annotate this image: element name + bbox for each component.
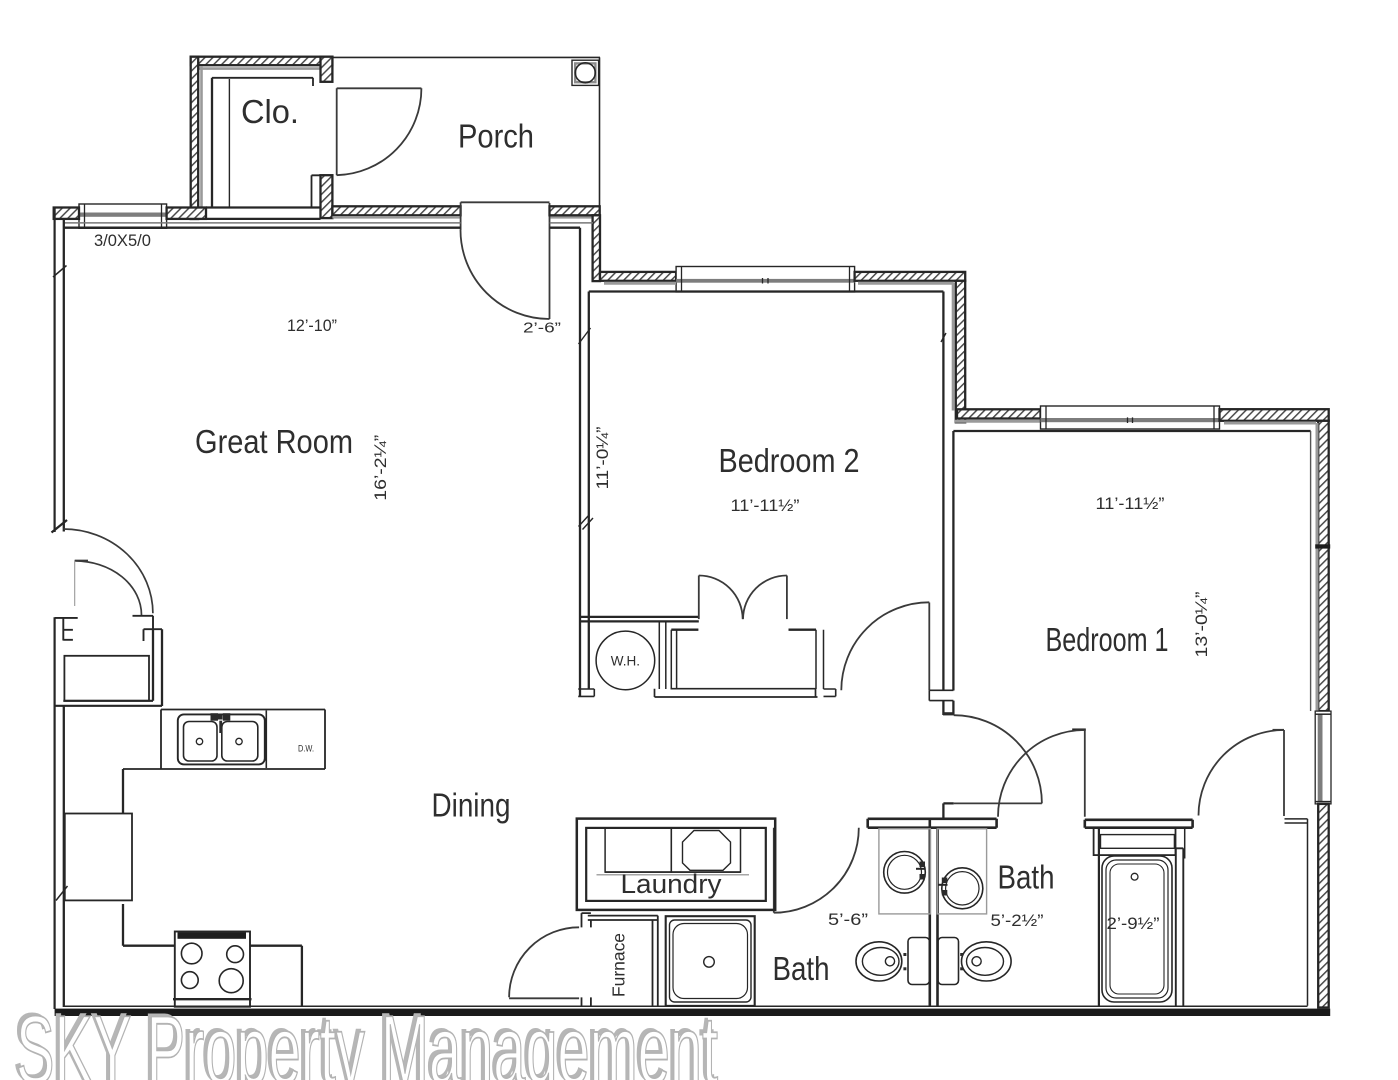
svg-text:Bath: Bath — [773, 950, 830, 987]
svg-text:11’-11½”: 11’-11½” — [1096, 495, 1165, 513]
svg-text:12’-10”: 12’-10” — [287, 317, 337, 335]
svg-text:Dining: Dining — [432, 787, 511, 824]
svg-text:Great Room: Great Room — [195, 423, 353, 460]
svg-text:D.W.: D.W. — [298, 744, 314, 754]
svg-text:SKY Property Management: SKY Property Management — [16, 996, 718, 1080]
svg-text:Bedroom 1: Bedroom 1 — [1046, 621, 1169, 658]
svg-text:Clo.: Clo. — [241, 93, 299, 130]
svg-text:11’-0¼”: 11’-0¼” — [594, 427, 612, 490]
svg-text:13’-0¼”: 13’-0¼” — [1193, 592, 1211, 658]
svg-text:Laundry: Laundry — [621, 869, 723, 899]
svg-text:5’-2½”: 5’-2½” — [991, 912, 1044, 930]
svg-text:2’-9½”: 2’-9½” — [1107, 915, 1160, 933]
svg-text:16’-2¼”: 16’-2¼” — [372, 435, 390, 501]
svg-text:5’-6”: 5’-6” — [828, 911, 868, 929]
svg-text:Porch: Porch — [458, 118, 534, 155]
svg-text:11’-11½”: 11’-11½” — [731, 497, 800, 515]
svg-text:3/0X5/0: 3/0X5/0 — [94, 232, 151, 250]
svg-text:Bedroom 2: Bedroom 2 — [719, 442, 860, 479]
svg-text:2’-6”: 2’-6” — [523, 321, 561, 337]
svg-text:W.H.: W.H. — [611, 654, 640, 669]
svg-text:Bath: Bath — [998, 859, 1055, 896]
svg-text:Furnace: Furnace — [609, 933, 629, 997]
